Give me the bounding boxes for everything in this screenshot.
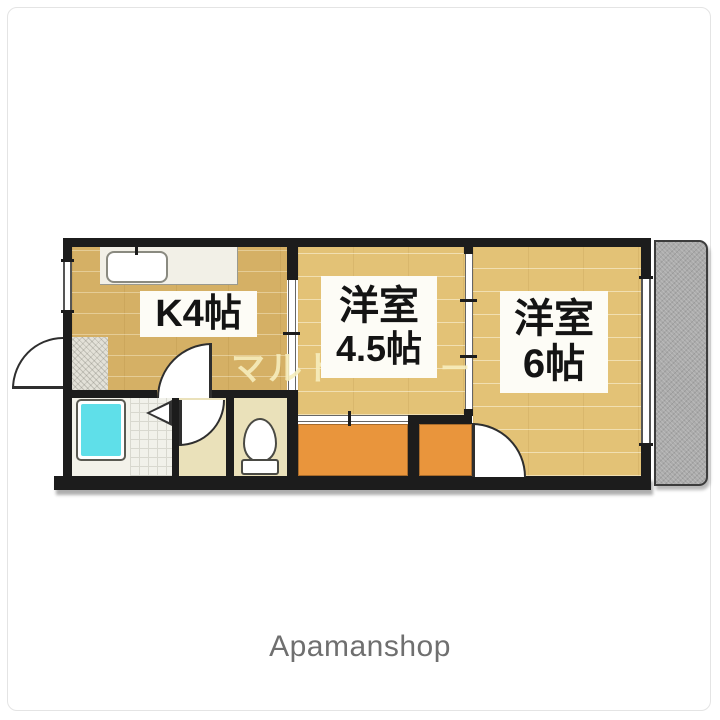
sliding-door-tick-2 xyxy=(348,411,351,426)
toilet-base xyxy=(241,459,279,475)
wall-partition-stub-top xyxy=(464,247,473,254)
sliding-door-room45-closet xyxy=(298,415,408,422)
window-right-wall xyxy=(641,278,651,445)
bathtub-water xyxy=(81,404,121,456)
toilet-bowl xyxy=(243,418,277,462)
wall-hall-right xyxy=(226,398,234,476)
western-room-45-label-line1: 洋室 xyxy=(339,284,419,329)
watermark-text-right: ー xyxy=(440,344,473,388)
sliding-door-tick-1 xyxy=(283,332,300,335)
wall-partition-stub-bottom xyxy=(464,409,473,416)
window-right-tick-top xyxy=(639,276,653,279)
western-room-6-label: 洋室 6帖 xyxy=(500,291,608,393)
closet-small xyxy=(419,424,472,476)
wall-kitchen-divider-bottom xyxy=(287,390,298,476)
balcony xyxy=(654,240,708,486)
wall-bottom xyxy=(54,476,651,490)
wall-below-kitchen-left xyxy=(72,390,157,398)
closet-large xyxy=(298,424,408,476)
window-left-tick-top xyxy=(61,259,74,262)
window-left-wall xyxy=(63,262,72,312)
entrance-genkan-tile xyxy=(72,337,108,390)
western-room-45-label-line2: 4.5帖 xyxy=(336,329,422,369)
kitchen-faucet xyxy=(135,247,138,255)
brand-logo-text: Apamanshop xyxy=(0,630,720,664)
window-left-tick-bottom xyxy=(61,310,74,313)
kitchen-label: K4帖 xyxy=(140,291,257,337)
wall-top xyxy=(63,238,651,247)
kitchen-sink xyxy=(106,251,168,283)
western-room-6-label-line2: 6帖 xyxy=(523,342,585,387)
floor-plan: マルト ー K4帖 洋室 4.5帖 洋室 6帖 xyxy=(0,0,720,720)
kitchen-label-text: K4帖 xyxy=(155,293,242,336)
western-room-6-label-line1: 洋室 xyxy=(514,297,594,342)
wall-hall-left xyxy=(172,398,179,476)
wall-kitchen-divider-top xyxy=(287,247,298,280)
wall-below-kitchen-right xyxy=(212,390,298,398)
partition-tick-1 xyxy=(460,299,477,302)
window-right-tick-bottom xyxy=(639,443,653,446)
wall-right-upper xyxy=(641,238,651,278)
wall-left-lower xyxy=(63,312,72,476)
entrance-door-arc xyxy=(12,337,63,389)
wall-right-lower xyxy=(641,445,651,476)
wall-between-closets xyxy=(408,415,419,476)
western-room-45-label: 洋室 4.5帖 xyxy=(321,276,437,378)
